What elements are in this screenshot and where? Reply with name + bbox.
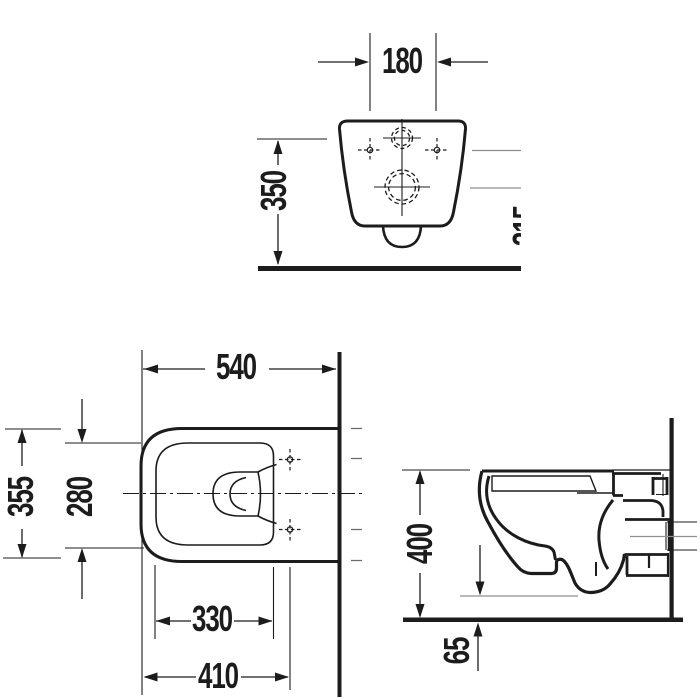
rear-floor-line xyxy=(258,266,521,271)
fixing-hole-symbol-left xyxy=(358,138,382,162)
dim-label-65: 65 xyxy=(439,638,475,665)
side-lower-block xyxy=(625,555,670,576)
dim-label-540: 540 xyxy=(216,349,256,385)
rear-center-lines xyxy=(374,119,430,216)
side-lower-block-edges xyxy=(649,553,668,577)
dim-label-315-clipped-container: 315 xyxy=(505,196,521,260)
side-inner-bowl-profile xyxy=(487,476,556,560)
dim-label-350: 350 xyxy=(256,171,292,211)
rear-outlet-arc xyxy=(383,226,421,247)
plan-wall-line xyxy=(338,352,342,697)
plan-view xyxy=(3,350,362,697)
side-view xyxy=(402,418,697,671)
plan-dimension-lines xyxy=(22,369,336,677)
technical-drawing: 180 350 540 355 280 330 410 400 65 315 xyxy=(0,0,700,700)
plan-dimension-arrows xyxy=(18,365,337,682)
rear-gray-reference-lines xyxy=(470,151,521,189)
plan-extension-lines xyxy=(3,429,290,690)
side-wall-line xyxy=(670,418,674,622)
drawing-linework xyxy=(0,0,700,700)
plan-fixing-hole-bottom xyxy=(279,519,301,541)
side-trap-inner-curve xyxy=(599,500,613,569)
side-trap-outer-profile xyxy=(552,554,625,593)
side-front-outer-profile xyxy=(479,471,552,574)
rear-dimension-arrows xyxy=(274,58,452,266)
dim-label-355: 355 xyxy=(3,477,39,517)
dim-label-280: 280 xyxy=(62,477,98,517)
dim-label-180: 180 xyxy=(382,43,422,79)
plan-behind-wall-segments xyxy=(351,429,362,561)
fixing-hole-symbol-right xyxy=(425,138,449,162)
side-flush-channel xyxy=(623,501,663,518)
side-seat-section xyxy=(492,476,613,493)
plan-fixing-hole-top xyxy=(279,449,301,471)
dim-label-410: 410 xyxy=(198,658,238,694)
side-inlet-block xyxy=(612,473,667,496)
dim-label-330: 330 xyxy=(192,601,232,637)
dim-label-315-clipped: 315 xyxy=(508,206,521,246)
dim-label-400: 400 xyxy=(402,524,438,564)
side-floor-line xyxy=(403,618,683,623)
